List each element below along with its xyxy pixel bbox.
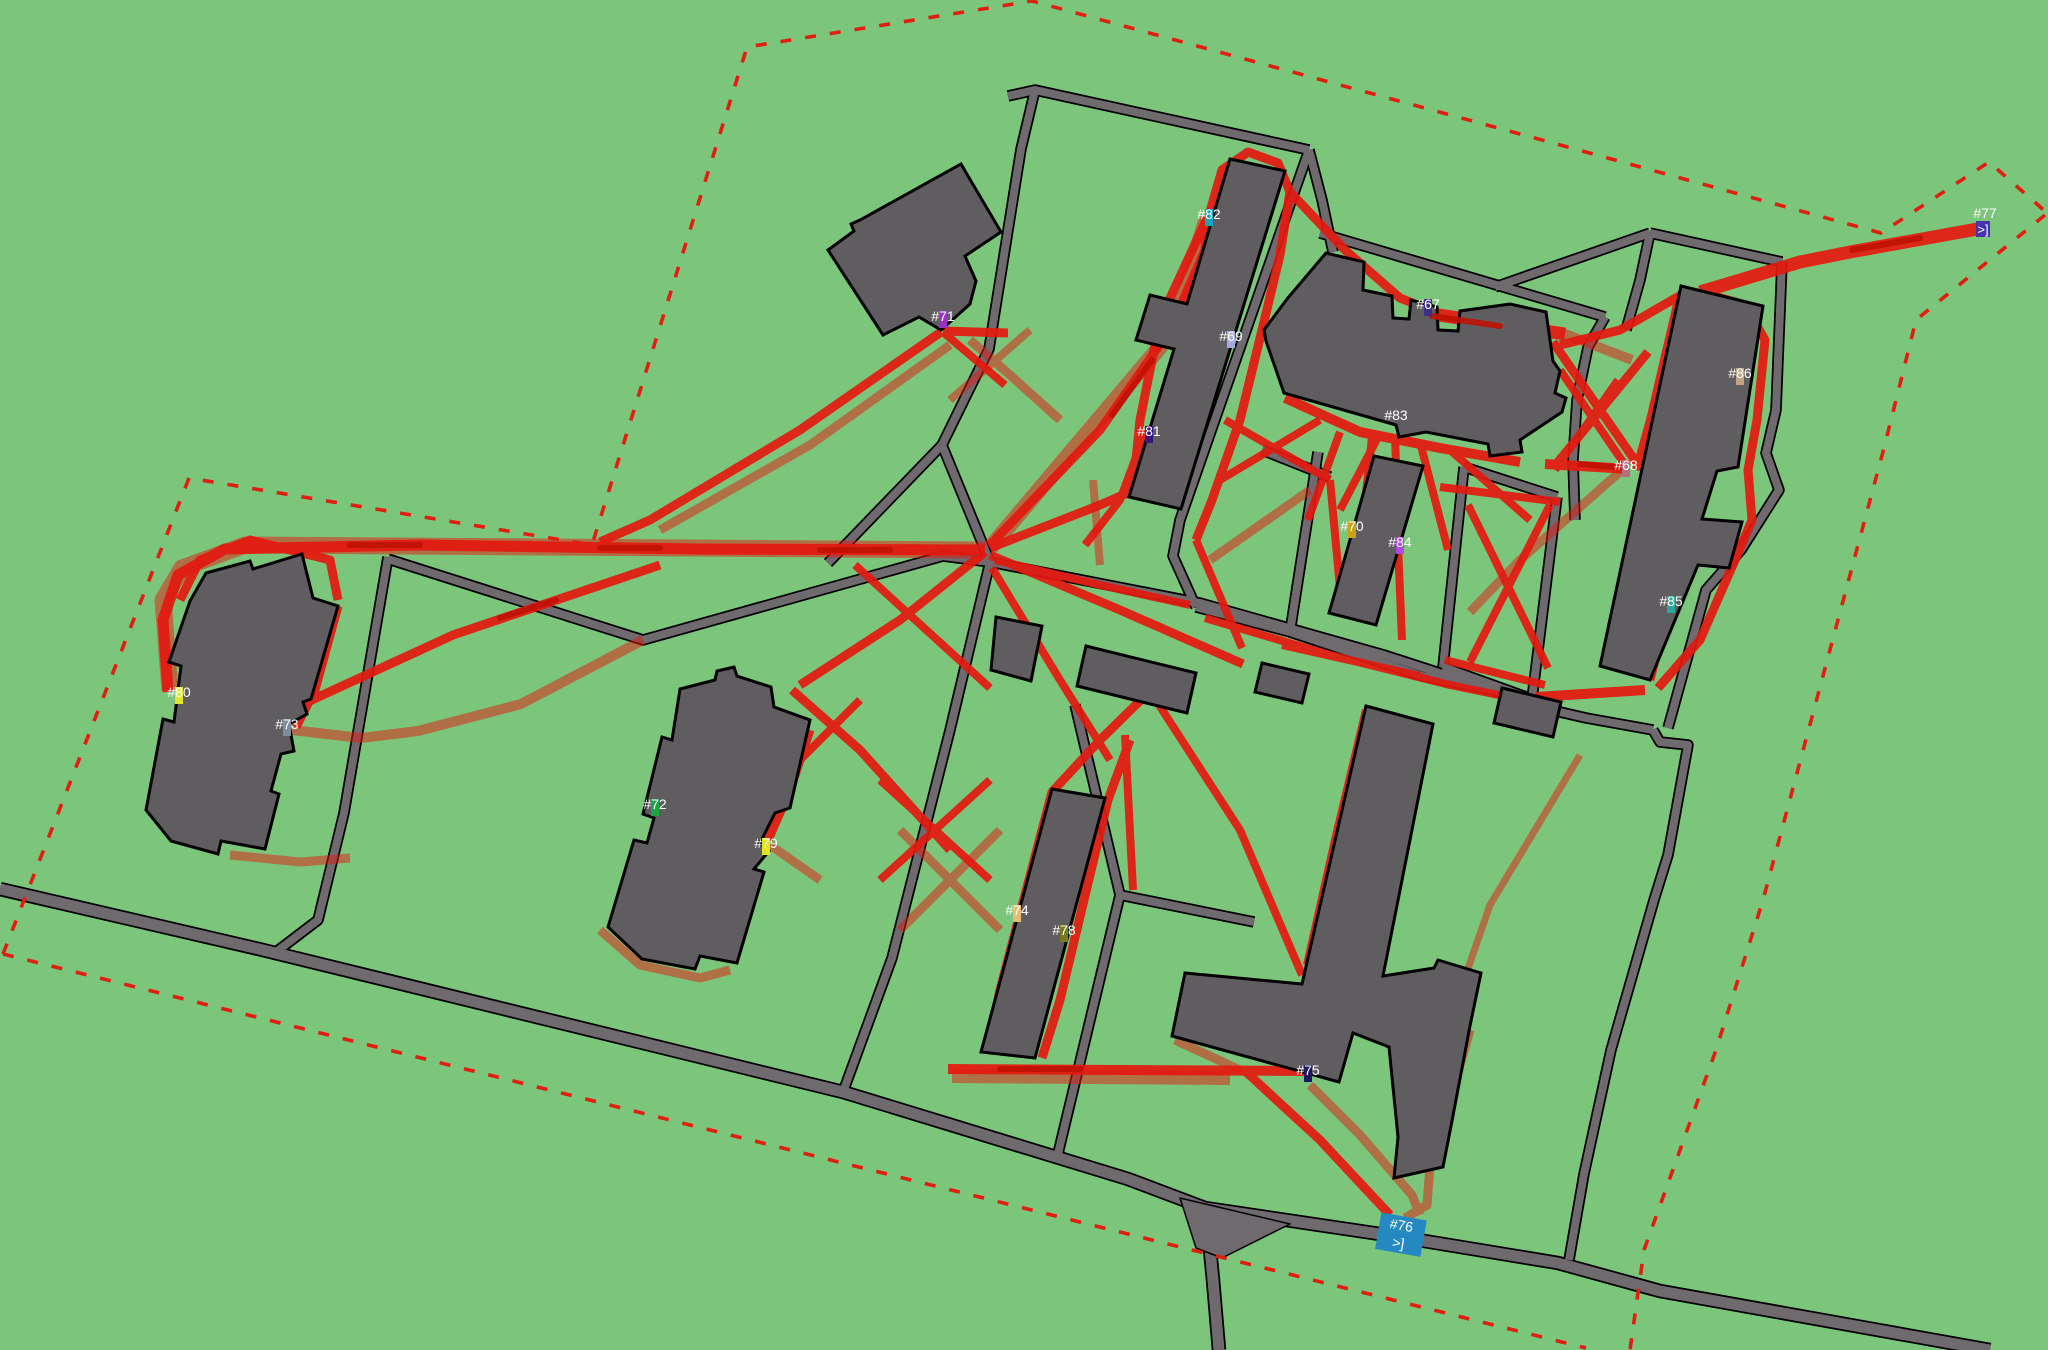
svg-text:>]: >] [1977,222,1988,237]
svg-text:#67: #67 [1416,296,1440,312]
svg-text:#71: #71 [931,308,955,324]
svg-text:#82: #82 [1197,206,1221,222]
svg-text:#70: #70 [1340,518,1364,534]
svg-text:#86: #86 [1728,365,1752,381]
svg-text:#77: #77 [1973,205,1997,221]
svg-text:#72: #72 [643,796,667,812]
svg-text:#75: #75 [1296,1062,1320,1078]
svg-text:#85: #85 [1659,593,1683,609]
svg-text:#81: #81 [1137,423,1161,439]
svg-text:#69: #69 [1219,328,1243,344]
svg-text:#79: #79 [754,835,778,851]
svg-text:#80: #80 [167,684,191,700]
svg-text:#73: #73 [275,716,299,732]
svg-text:#68: #68 [1614,457,1638,473]
svg-text:#83: #83 [1384,407,1408,423]
svg-text:#84: #84 [1388,534,1412,550]
svg-text:#78: #78 [1052,922,1076,938]
svg-text:#74: #74 [1005,902,1029,918]
